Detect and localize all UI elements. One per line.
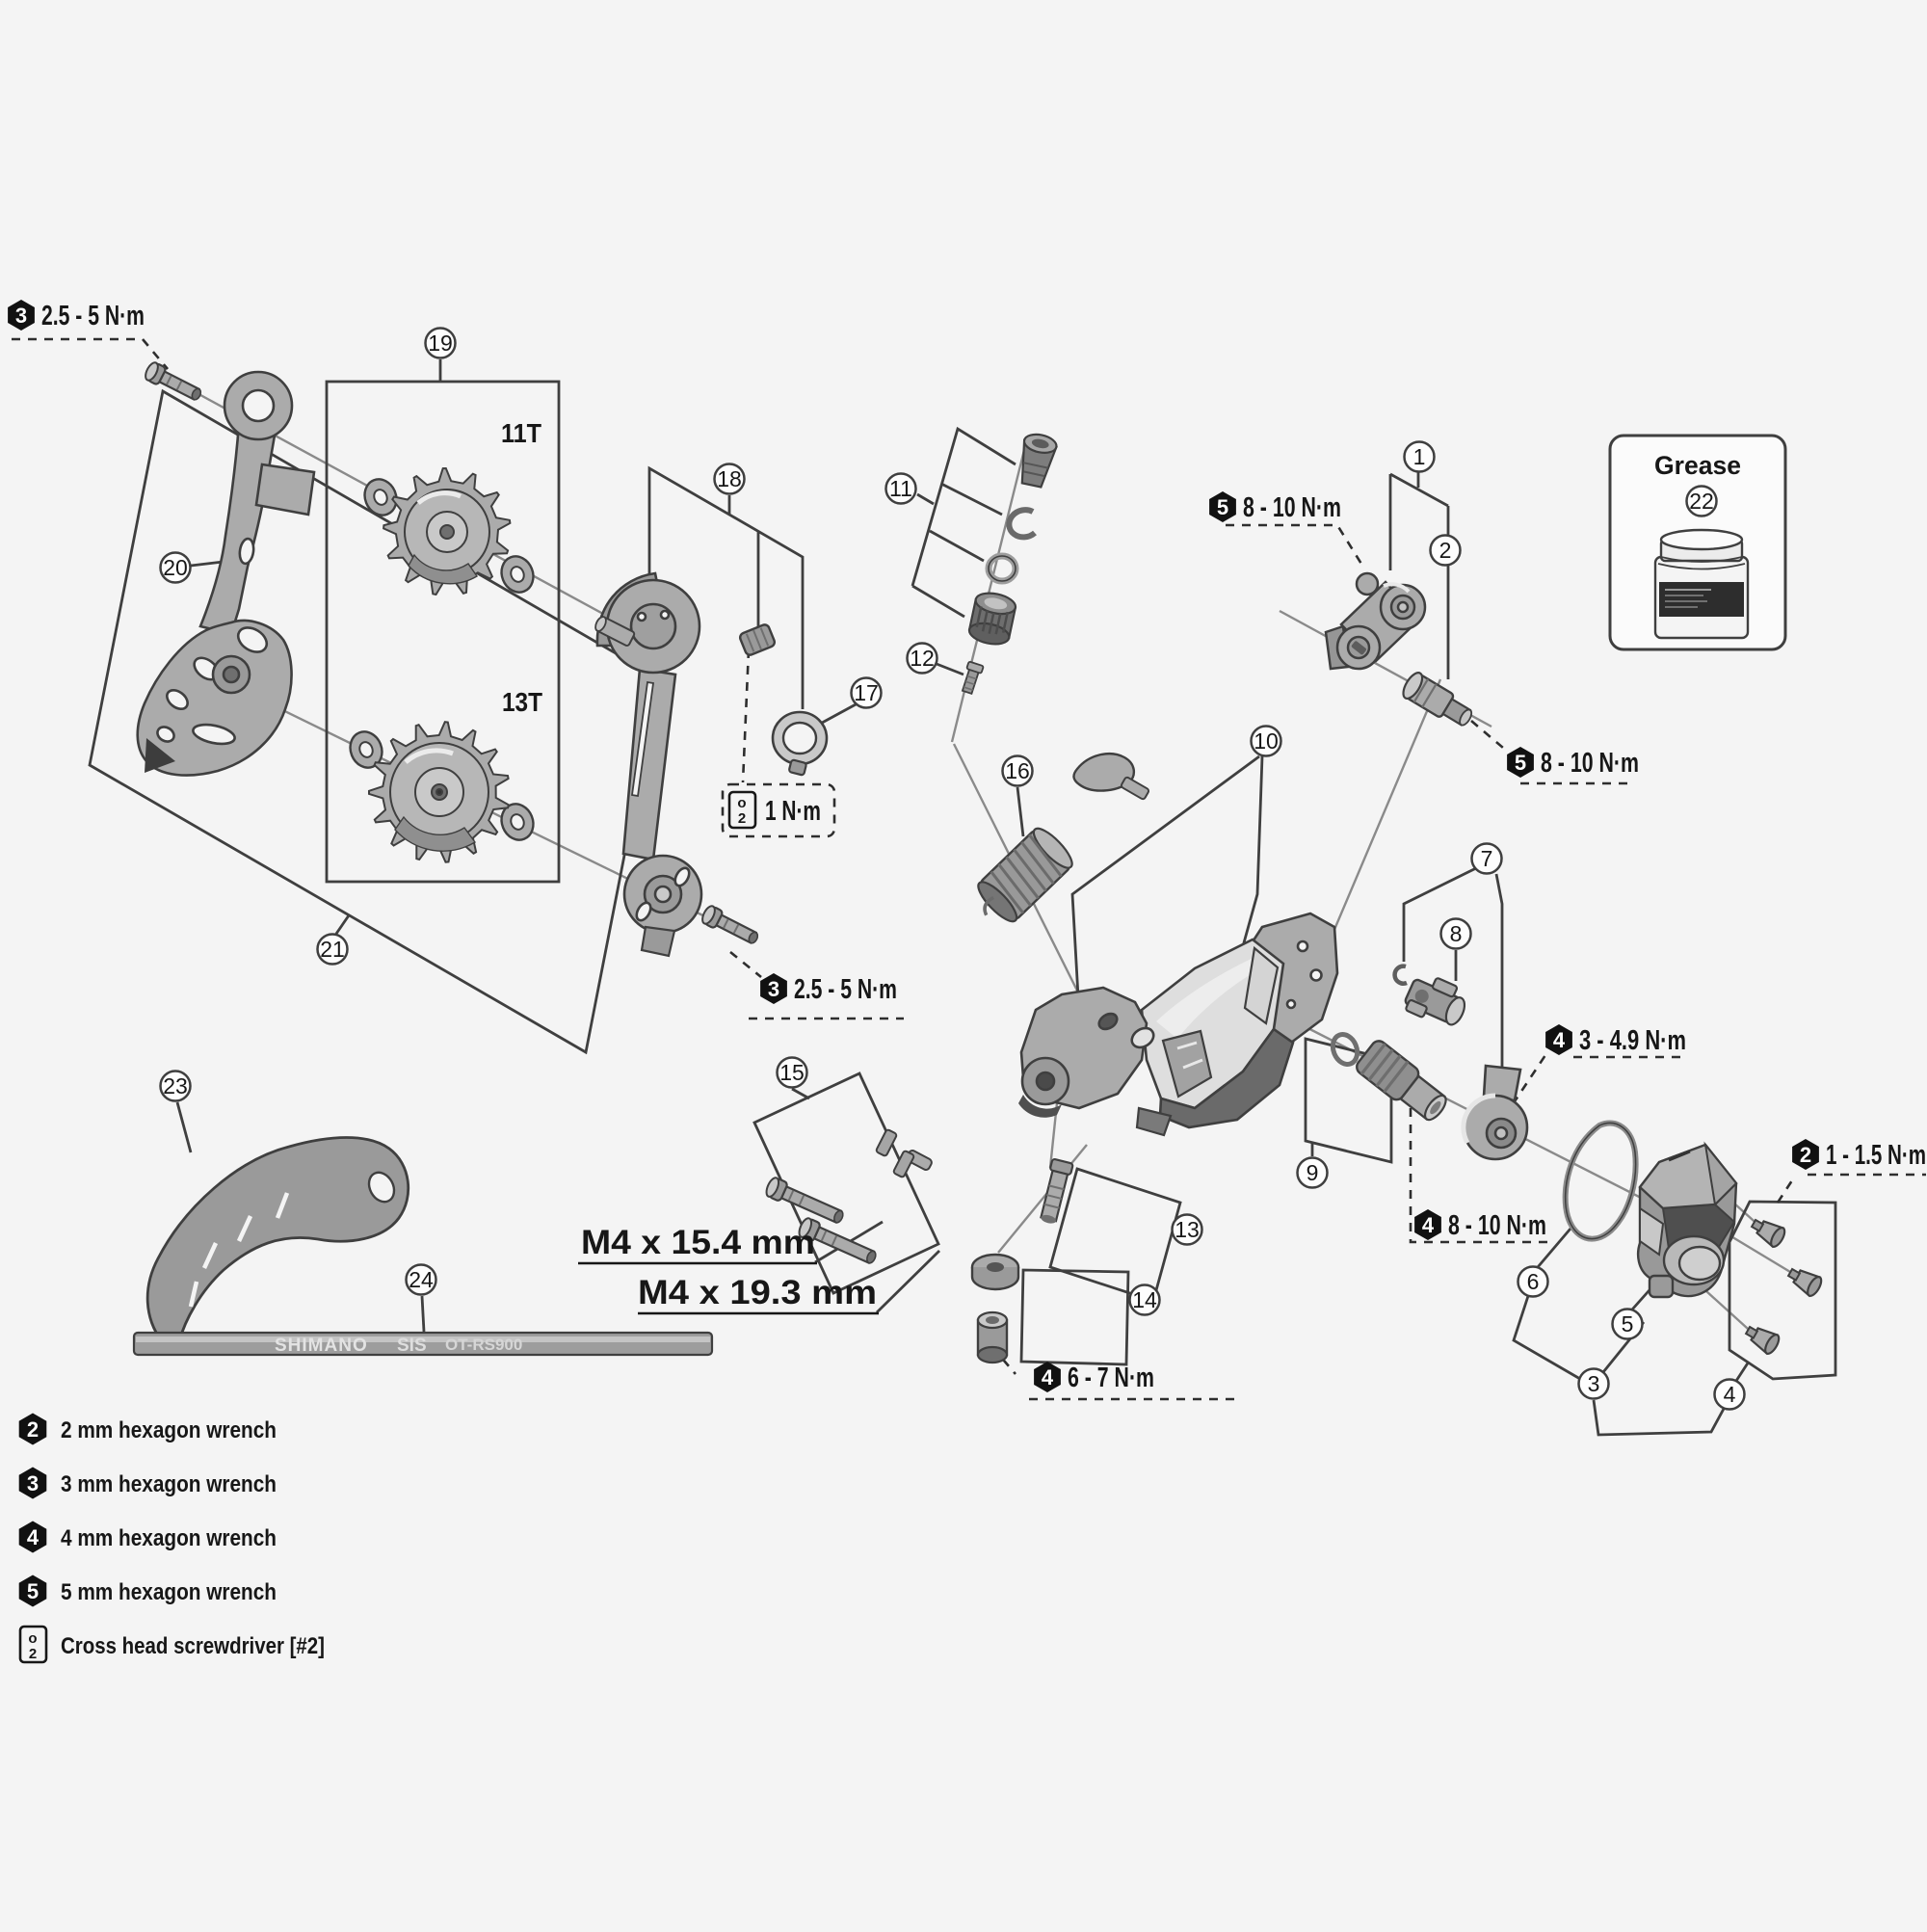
svg-text:M4 x 15.4 mm: M4 x 15.4 mm bbox=[581, 1224, 815, 1261]
svg-text:4: 4 bbox=[1422, 1213, 1435, 1237]
svg-text:4: 4 bbox=[1724, 1382, 1736, 1407]
svg-text:3: 3 bbox=[15, 304, 27, 328]
svg-text:8 - 10 N·m: 8 - 10 N·m bbox=[1448, 1210, 1546, 1241]
svg-text:3 - 4.9 N·m: 3 - 4.9 N·m bbox=[1579, 1025, 1686, 1056]
svg-text:24: 24 bbox=[409, 1267, 434, 1292]
svg-text:SIS: SIS bbox=[397, 1336, 427, 1356]
svg-text:8: 8 bbox=[1450, 921, 1463, 946]
svg-text:3: 3 bbox=[1588, 1371, 1600, 1396]
svg-text:11: 11 bbox=[889, 476, 912, 501]
svg-text:2 mm hexagon wrench: 2 mm hexagon wrench bbox=[61, 1417, 277, 1443]
svg-text:4: 4 bbox=[1553, 1028, 1566, 1052]
svg-text:o: o bbox=[28, 1630, 37, 1647]
svg-text:OT-RS900: OT-RS900 bbox=[445, 1336, 522, 1354]
svg-text:21: 21 bbox=[320, 937, 345, 962]
svg-text:2.5 - 5 N·m: 2.5 - 5 N·m bbox=[41, 301, 145, 331]
svg-text:4 mm hexagon wrench: 4 mm hexagon wrench bbox=[61, 1525, 277, 1551]
svg-text:17: 17 bbox=[854, 680, 879, 705]
svg-text:2.5 - 5 N·m: 2.5 - 5 N·m bbox=[794, 974, 897, 1005]
svg-text:23: 23 bbox=[163, 1073, 188, 1098]
svg-text:10: 10 bbox=[1254, 728, 1279, 754]
svg-text:13: 13 bbox=[1175, 1217, 1200, 1242]
svg-text:1: 1 bbox=[1413, 444, 1426, 469]
svg-text:8 - 10 N·m: 8 - 10 N·m bbox=[1243, 492, 1341, 523]
svg-text:M4 x 19.3 mm: M4 x 19.3 mm bbox=[638, 1274, 877, 1311]
svg-text:SHIMANO: SHIMANO bbox=[275, 1336, 368, 1356]
svg-text:14: 14 bbox=[1132, 1287, 1157, 1312]
svg-text:13T: 13T bbox=[502, 687, 542, 717]
svg-text:22: 22 bbox=[1689, 489, 1714, 514]
svg-text:6: 6 bbox=[1527, 1269, 1540, 1294]
svg-text:5: 5 bbox=[1622, 1311, 1634, 1337]
svg-text:2: 2 bbox=[738, 810, 746, 827]
svg-text:Grease: Grease bbox=[1654, 451, 1741, 480]
svg-text:1 - 1.5 N·m: 1 - 1.5 N·m bbox=[1826, 1140, 1926, 1171]
svg-text:2: 2 bbox=[1800, 1143, 1811, 1167]
svg-text:4: 4 bbox=[27, 1525, 40, 1549]
svg-text:16: 16 bbox=[1005, 758, 1030, 783]
svg-text:20: 20 bbox=[163, 555, 188, 580]
svg-text:12: 12 bbox=[910, 646, 935, 671]
svg-text:15: 15 bbox=[779, 1060, 805, 1085]
svg-text:6 - 7 N·m: 6 - 7 N·m bbox=[1068, 1363, 1154, 1393]
svg-text:o: o bbox=[737, 795, 746, 811]
svg-text:7: 7 bbox=[1481, 846, 1493, 871]
svg-text:1 N·m: 1 N·m bbox=[765, 796, 821, 827]
svg-text:4: 4 bbox=[1042, 1365, 1054, 1389]
svg-text:8 - 10 N·m: 8 - 10 N·m bbox=[1541, 748, 1639, 779]
svg-text:2: 2 bbox=[1439, 538, 1452, 563]
svg-text:3: 3 bbox=[768, 977, 779, 1001]
svg-text:3 mm hexagon wrench: 3 mm hexagon wrench bbox=[61, 1471, 277, 1497]
svg-text:2: 2 bbox=[29, 1646, 37, 1662]
svg-text:2: 2 bbox=[27, 1417, 39, 1442]
svg-text:9: 9 bbox=[1307, 1160, 1319, 1185]
svg-text:11T: 11T bbox=[501, 418, 541, 448]
svg-text:5 mm hexagon wrench: 5 mm hexagon wrench bbox=[61, 1579, 277, 1605]
svg-text:3: 3 bbox=[27, 1471, 39, 1495]
svg-text:18: 18 bbox=[717, 466, 742, 491]
svg-text:5: 5 bbox=[1217, 495, 1228, 519]
svg-text:5: 5 bbox=[1515, 751, 1526, 775]
svg-text:5: 5 bbox=[27, 1579, 39, 1603]
svg-text:Cross head screwdriver [#2]: Cross head screwdriver [#2] bbox=[61, 1633, 325, 1659]
svg-text:19: 19 bbox=[428, 331, 453, 356]
